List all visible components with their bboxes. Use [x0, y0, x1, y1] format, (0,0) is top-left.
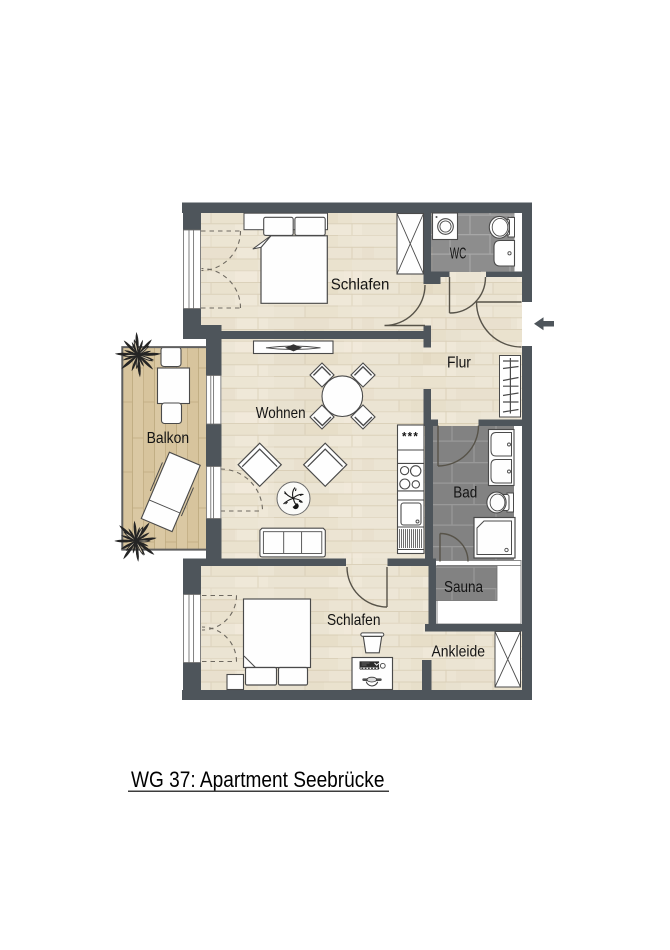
svg-text:Balkon: Balkon [147, 430, 189, 447]
svg-text:Schlafen: Schlafen [327, 612, 380, 629]
svg-text:WG 37: Apartment Seebrücke: WG 37: Apartment Seebrücke [131, 768, 384, 793]
svg-text:WC: WC [450, 244, 467, 262]
svg-text:Wohnen: Wohnen [256, 405, 306, 422]
svg-text:Bad: Bad [453, 485, 477, 502]
svg-text:Flur: Flur [447, 355, 471, 372]
svg-text:***: *** [402, 432, 419, 444]
svg-text:Sauna: Sauna [444, 579, 484, 596]
svg-text:Schlafen: Schlafen [331, 276, 390, 293]
svg-text:Ankleide: Ankleide [432, 644, 485, 661]
